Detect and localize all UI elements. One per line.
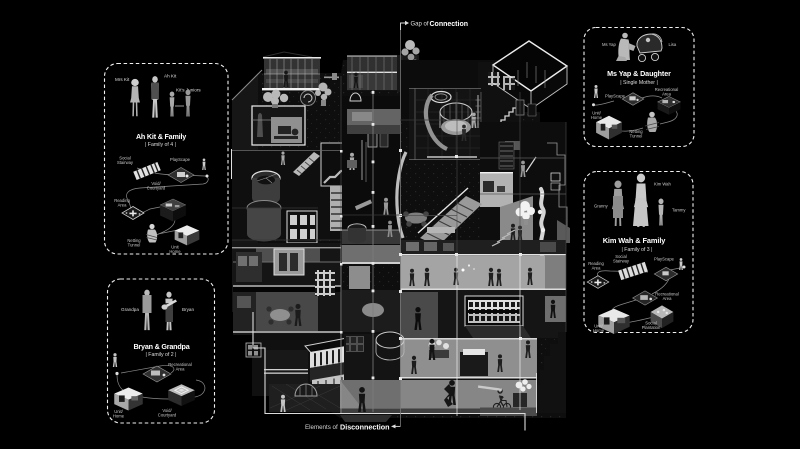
svg-text:Bryan & Grandpa: Bryan & Grandpa [133,342,190,351]
svg-text:Ms Yap: Ms Yap [602,42,616,47]
svg-text:Ms Yap & Daughter: Ms Yap & Daughter [607,69,671,78]
svg-text:Courtyard: Courtyard [158,413,177,418]
svg-text:Ah Kit: Ah Kit [164,74,177,79]
svg-text:Area: Area [118,203,128,208]
svg-text:Ah Kit & Family: Ah Kit & Family [136,132,186,141]
svg-text:Home: Home [593,328,605,333]
svg-text:Area: Area [662,92,672,97]
svg-text:Home: Home [113,414,125,419]
svg-text:Elements of: Elements of [305,424,338,431]
svg-text:PlayScape: PlayScape [170,157,191,162]
svg-text:Stairway: Stairway [613,259,630,264]
svg-text:Grandpa: Grandpa [121,307,139,312]
svg-text:Courtyard: Courtyard [147,186,166,191]
svg-text:Tunnel: Tunnel [128,243,141,248]
svg-text:Granny: Granny [594,204,609,209]
svg-text:| Family of 4 |: | Family of 4 | [145,142,176,148]
svg-text:| Family of 2 |: | Family of 2 | [146,352,177,358]
svg-text:Tunnel: Tunnel [630,134,643,139]
svg-text:Area: Area [592,266,602,271]
svg-text:Kim Wah: Kim Wah [654,182,672,187]
svg-text:Gap of: Gap of [411,22,429,28]
svg-text:Mrs Kit: Mrs Kit [115,77,130,82]
svg-text:PlayScape: PlayScape [654,257,675,262]
svg-text:Plantation: Plantation [642,325,661,330]
svg-text:Home: Home [169,249,181,254]
svg-text:Kim Wah & Family: Kim Wah & Family [603,236,667,245]
svg-text:Tammy: Tammy [672,208,686,213]
svg-text:| Single Mother |: | Single Mother | [620,80,658,86]
svg-text:Connection: Connection [430,21,469,28]
svg-text:PlayScape: PlayScape [605,94,626,99]
svg-text:Stairway: Stairway [117,160,134,165]
svg-text:Area: Area [663,296,673,301]
svg-text:Lisa: Lisa [669,42,677,47]
svg-text:Home: Home [591,115,603,120]
svg-text:| Family of 3 |: | Family of 3 | [622,247,653,253]
svg-text:Area: Area [176,367,186,372]
svg-text:Bryan: Bryan [182,307,194,312]
svg-text:Disconnection: Disconnection [340,423,390,432]
